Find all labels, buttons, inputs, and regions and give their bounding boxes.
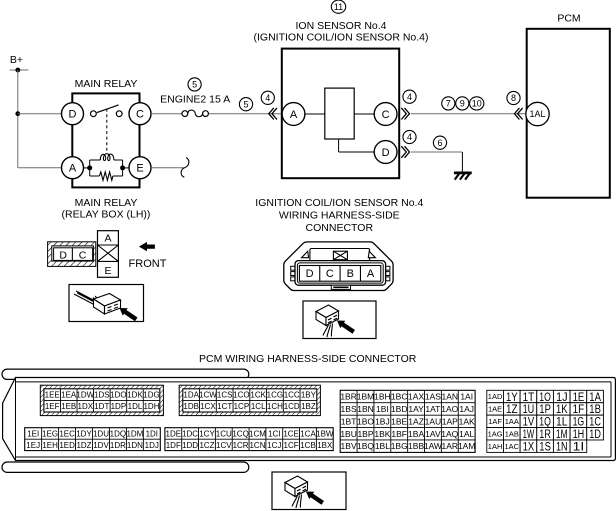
svg-text:1DX: 1DX bbox=[78, 402, 94, 411]
svg-text:1AJ: 1AJ bbox=[459, 404, 474, 414]
svg-text:1CN: 1CN bbox=[249, 441, 265, 450]
svg-text:1DO: 1DO bbox=[110, 391, 126, 400]
svg-text:1EE: 1EE bbox=[45, 391, 60, 400]
svg-text:1BF: 1BF bbox=[391, 429, 407, 439]
svg-text:1CD: 1CD bbox=[284, 402, 300, 411]
svg-text:1BL: 1BL bbox=[375, 441, 390, 451]
svg-text:5: 5 bbox=[243, 99, 248, 109]
svg-text:1D: 1D bbox=[589, 427, 601, 441]
svg-text:1CA: 1CA bbox=[300, 429, 316, 438]
svg-text:FRONT: FRONT bbox=[129, 258, 167, 270]
svg-text:1AU: 1AU bbox=[425, 416, 442, 426]
svg-text:(RELAY BOX (LH)): (RELAY BOX (LH)) bbox=[62, 208, 151, 220]
svg-text:1DI: 1DI bbox=[146, 429, 158, 438]
svg-text:1AR: 1AR bbox=[442, 441, 459, 451]
svg-text:1EB: 1EB bbox=[61, 402, 76, 411]
svg-text:1DQ: 1DQ bbox=[110, 429, 126, 438]
svg-text:5: 5 bbox=[192, 80, 197, 90]
svg-text:1AN: 1AN bbox=[442, 392, 459, 402]
svg-text:1DA: 1DA bbox=[183, 391, 199, 400]
svg-text:1AL: 1AL bbox=[459, 429, 474, 439]
svg-text:1BT: 1BT bbox=[341, 416, 357, 426]
svg-text:7: 7 bbox=[446, 99, 451, 109]
svg-text:1DM: 1DM bbox=[126, 429, 143, 438]
svg-text:B+: B+ bbox=[10, 54, 23, 66]
svg-text:1S: 1S bbox=[539, 439, 551, 453]
svg-text:1DJ: 1DJ bbox=[145, 441, 159, 450]
svg-text:1N: 1N bbox=[556, 439, 568, 453]
svg-text:11: 11 bbox=[334, 2, 343, 12]
svg-text:1CC: 1CC bbox=[284, 391, 300, 400]
svg-text:1AO: 1AO bbox=[441, 404, 458, 414]
svg-text:1BR: 1BR bbox=[340, 392, 357, 402]
svg-text:1DZ: 1DZ bbox=[76, 441, 91, 450]
svg-text:1CM: 1CM bbox=[249, 429, 266, 438]
svg-text:1BB: 1BB bbox=[408, 441, 424, 451]
svg-text:1DV: 1DV bbox=[93, 441, 109, 450]
svg-text:1CU: 1CU bbox=[216, 429, 232, 438]
svg-text:IGNITION COIL/ION SENSOR No.4: IGNITION COIL/ION SENSOR No.4 bbox=[255, 197, 423, 209]
svg-text:C: C bbox=[326, 268, 334, 280]
svg-text:1BQ: 1BQ bbox=[357, 441, 374, 451]
svg-text:1CS: 1CS bbox=[217, 391, 233, 400]
svg-text:1CR: 1CR bbox=[233, 441, 249, 450]
svg-text:9: 9 bbox=[460, 99, 465, 109]
svg-text:CONNECTOR: CONNECTOR bbox=[306, 222, 374, 234]
svg-text:1CH: 1CH bbox=[267, 402, 283, 411]
svg-text:4: 4 bbox=[265, 93, 270, 103]
svg-text:1BG: 1BG bbox=[391, 441, 408, 451]
svg-text:D: D bbox=[306, 268, 314, 280]
svg-text:1CX: 1CX bbox=[200, 402, 216, 411]
svg-text:1CK: 1CK bbox=[250, 391, 266, 400]
svg-text:WIRING HARNESS-SIDE: WIRING HARNESS-SIDE bbox=[279, 210, 400, 222]
svg-text:A: A bbox=[104, 233, 111, 245]
svg-text:E: E bbox=[136, 163, 143, 175]
svg-text:1AZ: 1AZ bbox=[408, 416, 424, 426]
svg-text:1AP: 1AP bbox=[442, 416, 458, 426]
svg-text:MAIN RELAY: MAIN RELAY bbox=[75, 78, 138, 90]
svg-text:1AV: 1AV bbox=[425, 429, 441, 439]
svg-text:1CG: 1CG bbox=[267, 391, 283, 400]
svg-text:1CP: 1CP bbox=[234, 402, 250, 411]
svg-text:1CL: 1CL bbox=[251, 402, 266, 411]
svg-text:1CW: 1CW bbox=[199, 391, 217, 400]
svg-text:1DP: 1DP bbox=[111, 402, 127, 411]
svg-text:1CY: 1CY bbox=[199, 429, 215, 438]
svg-text:1DL: 1DL bbox=[128, 402, 143, 411]
svg-text:1AM: 1AM bbox=[458, 441, 475, 451]
svg-text:1EC: 1EC bbox=[59, 429, 75, 438]
svg-text:1CZ: 1CZ bbox=[199, 441, 214, 450]
svg-text:8: 8 bbox=[511, 93, 516, 103]
svg-text:1Z: 1Z bbox=[506, 402, 518, 416]
svg-text:1AE: 1AE bbox=[488, 405, 502, 414]
svg-text:1CE: 1CE bbox=[283, 429, 299, 438]
svg-text:C: C bbox=[382, 109, 390, 121]
svg-text:D: D bbox=[382, 147, 390, 159]
svg-text:1AX: 1AX bbox=[408, 392, 424, 402]
svg-text:1DB: 1DB bbox=[183, 402, 199, 411]
svg-text:E: E bbox=[104, 265, 111, 277]
svg-text:1ED: 1ED bbox=[59, 441, 75, 450]
svg-text:1AH: 1AH bbox=[488, 442, 503, 451]
svg-text:1AS: 1AS bbox=[425, 392, 441, 402]
svg-text:1BU: 1BU bbox=[340, 429, 357, 439]
svg-text:1DE: 1DE bbox=[166, 429, 182, 438]
svg-text:1EJ: 1EJ bbox=[26, 441, 40, 450]
svg-text:1DK: 1DK bbox=[127, 391, 143, 400]
svg-text:1BV: 1BV bbox=[341, 441, 357, 451]
svg-text:1DW: 1DW bbox=[76, 391, 94, 400]
svg-text:1DR: 1DR bbox=[110, 441, 126, 450]
svg-text:1BY: 1BY bbox=[301, 391, 317, 400]
svg-text:1CT: 1CT bbox=[217, 402, 232, 411]
svg-text:D: D bbox=[69, 109, 77, 121]
svg-text:(IGNITION COIL/ION SENSOR No.4: (IGNITION COIL/ION SENSOR No.4) bbox=[253, 32, 428, 44]
svg-text:1CV: 1CV bbox=[216, 441, 232, 450]
svg-text:1BX: 1BX bbox=[317, 441, 333, 450]
svg-text:1X: 1X bbox=[523, 439, 535, 453]
svg-text:ION SENSOR No.4: ION SENSOR No.4 bbox=[295, 20, 386, 32]
svg-text:B: B bbox=[347, 268, 354, 280]
svg-text:1BO: 1BO bbox=[357, 416, 374, 426]
svg-text:1BA: 1BA bbox=[408, 429, 424, 439]
svg-text:1AG: 1AG bbox=[488, 430, 503, 439]
svg-text:C: C bbox=[79, 249, 87, 261]
svg-text:1DY: 1DY bbox=[76, 429, 92, 438]
svg-text:1BM: 1BM bbox=[357, 392, 374, 402]
svg-text:PCM: PCM bbox=[557, 13, 580, 25]
svg-text:1AF: 1AF bbox=[488, 417, 502, 426]
svg-text:1CB: 1CB bbox=[300, 441, 316, 450]
svg-text:PCM WIRING HARNESS-SIDE CONNEC: PCM WIRING HARNESS-SIDE CONNECTOR bbox=[199, 353, 417, 365]
svg-text:1CF: 1CF bbox=[284, 441, 299, 450]
svg-text:1BE: 1BE bbox=[391, 416, 407, 426]
svg-text:1BK: 1BK bbox=[374, 429, 390, 439]
svg-text:1CO: 1CO bbox=[233, 391, 249, 400]
svg-text:1AD: 1AD bbox=[488, 392, 503, 401]
svg-text:1DD: 1DD bbox=[182, 441, 198, 450]
svg-text:1EH: 1EH bbox=[42, 441, 58, 450]
svg-text:1BJ: 1BJ bbox=[375, 416, 390, 426]
svg-text:1BD: 1BD bbox=[391, 404, 408, 414]
svg-text:A: A bbox=[367, 268, 375, 280]
svg-text:A: A bbox=[69, 163, 77, 175]
svg-text:1BW: 1BW bbox=[316, 429, 334, 438]
svg-text:1DN: 1DN bbox=[127, 441, 143, 450]
svg-text:1DU: 1DU bbox=[93, 429, 109, 438]
svg-text:D: D bbox=[59, 249, 67, 261]
svg-text:1EI: 1EI bbox=[27, 429, 39, 438]
svg-text:1BZ: 1BZ bbox=[301, 402, 316, 411]
svg-text:A: A bbox=[290, 109, 298, 121]
svg-text:1AI: 1AI bbox=[460, 392, 473, 402]
svg-text:10: 10 bbox=[472, 99, 482, 109]
svg-text:1AA: 1AA bbox=[505, 417, 519, 426]
svg-text:1BI: 1BI bbox=[376, 404, 389, 414]
svg-text:4: 4 bbox=[407, 132, 412, 142]
svg-text:1AQ: 1AQ bbox=[441, 429, 458, 439]
svg-text:1AK: 1AK bbox=[459, 416, 475, 426]
svg-text:1DT: 1DT bbox=[94, 402, 109, 411]
svg-text:1CI: 1CI bbox=[268, 429, 280, 438]
svg-text:1EA: 1EA bbox=[61, 391, 77, 400]
svg-text:1AW: 1AW bbox=[424, 441, 442, 451]
svg-text:1AL: 1AL bbox=[529, 109, 545, 119]
svg-text:1BN: 1BN bbox=[357, 404, 374, 414]
svg-text:1AY: 1AY bbox=[408, 404, 424, 414]
svg-text:1BP: 1BP bbox=[357, 429, 373, 439]
svg-text:1DF: 1DF bbox=[166, 441, 181, 450]
svg-text:6: 6 bbox=[437, 138, 442, 148]
svg-text:1BS: 1BS bbox=[341, 404, 357, 414]
svg-text:1DS: 1DS bbox=[94, 391, 110, 400]
svg-text:ENGINE2 15 A: ENGINE2 15 A bbox=[160, 94, 230, 106]
svg-text:C: C bbox=[136, 109, 144, 121]
svg-text:1DC: 1DC bbox=[182, 429, 198, 438]
svg-text:1EF: 1EF bbox=[45, 402, 60, 411]
svg-text:4: 4 bbox=[407, 92, 412, 102]
svg-text:1CQ: 1CQ bbox=[232, 429, 248, 438]
svg-text:1CJ: 1CJ bbox=[267, 441, 281, 450]
svg-text:1BH: 1BH bbox=[374, 392, 391, 402]
svg-text:1AT: 1AT bbox=[425, 404, 440, 414]
svg-text:1BC: 1BC bbox=[391, 392, 408, 402]
svg-text:1AC: 1AC bbox=[505, 442, 520, 451]
svg-text:1AB: 1AB bbox=[505, 430, 519, 439]
svg-text:1DH: 1DH bbox=[143, 402, 159, 411]
svg-text:1EG: 1EG bbox=[42, 429, 58, 438]
svg-text:1I: 1I bbox=[573, 439, 585, 453]
svg-text:1DG: 1DG bbox=[143, 391, 159, 400]
